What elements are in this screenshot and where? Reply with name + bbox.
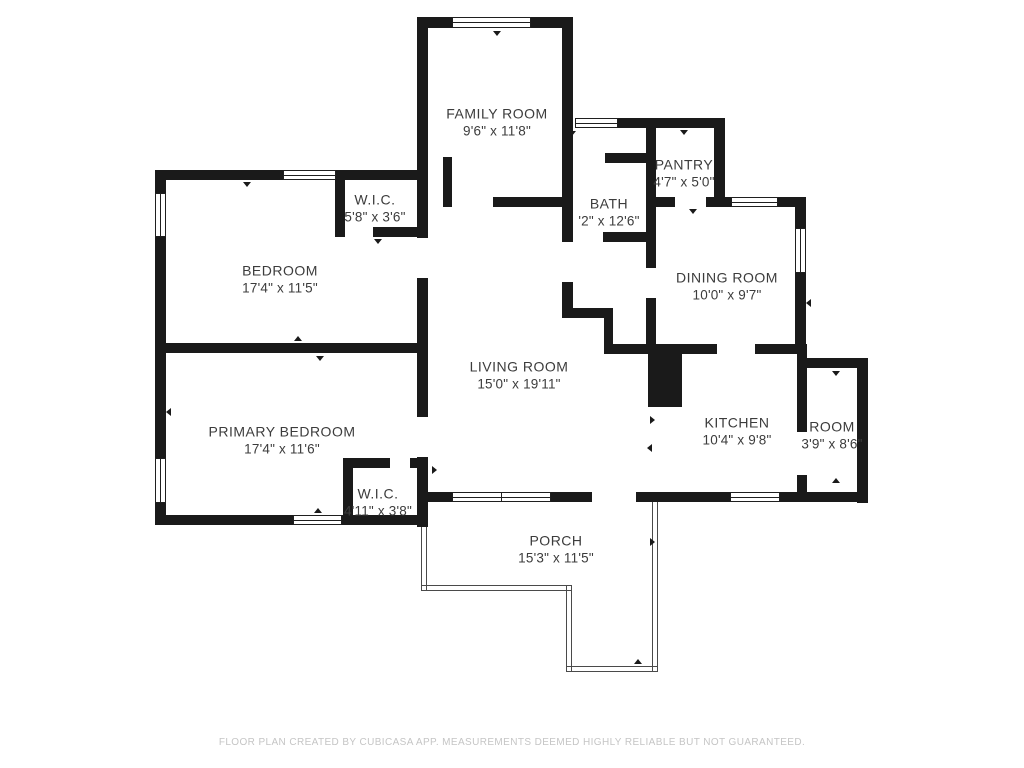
wall-segment	[795, 271, 806, 354]
wall-segment	[778, 492, 868, 502]
room-name: BATH	[578, 196, 639, 212]
wall-segment	[425, 492, 453, 502]
dimension-tick	[294, 336, 302, 341]
window-symbol	[293, 515, 342, 525]
window-symbol	[155, 458, 166, 503]
wall-segment	[562, 127, 573, 242]
dimension-tick	[689, 209, 697, 214]
window-symbol	[795, 228, 806, 273]
dimension-tick	[493, 31, 501, 36]
room-label-primary-bedroom: PRIMARY BEDROOM17'4" x 11'6"	[208, 424, 355, 457]
floor-plan-canvas: FAMILY ROOM9'6" x 11'8"PANTRY4'7" x 5'0"…	[0, 0, 1024, 768]
room-name: W.I.C.	[344, 192, 405, 208]
room-name: FAMILY ROOM	[446, 106, 547, 122]
room-label-living-room: LIVING ROOM15'0" x 19'11"	[470, 359, 569, 392]
dimension-tick	[647, 444, 652, 452]
wall-segment	[605, 153, 650, 163]
room-dimensions: 5'8" x 3'6"	[344, 210, 405, 225]
window-mullion-line	[160, 459, 161, 502]
window-symbol	[501, 492, 551, 502]
porch-outline	[566, 666, 658, 672]
window-mullion-line	[502, 497, 550, 498]
room-dimensions: 17'4" x 11'6"	[208, 442, 355, 457]
dimension-tick	[432, 466, 437, 474]
wall-segment	[706, 197, 725, 207]
wall-segment	[334, 170, 428, 180]
window-mullion-line	[576, 123, 617, 124]
window-mullion-line	[160, 194, 161, 236]
wall-segment	[549, 492, 592, 502]
room-label-porch: PORCH15'3" x 11'5"	[518, 533, 594, 566]
wall-segment	[373, 227, 428, 237]
room-name: PRIMARY BEDROOM	[208, 424, 355, 440]
room-name: KITCHEN	[703, 415, 772, 431]
wall-segment	[803, 358, 865, 368]
dimension-tick	[634, 659, 642, 664]
room-label-bedroom: BEDROOM17'4" x 11'5"	[242, 263, 318, 296]
window-mullion-line	[453, 497, 501, 498]
window-mullion-line	[800, 229, 801, 272]
wall-segment	[646, 197, 675, 207]
wall-segment	[714, 118, 725, 207]
room-dimensions: '2" x 12'6"	[578, 214, 639, 229]
room-label-w-i-c: W.I.C.5'8" x 3'6"	[344, 192, 405, 225]
room-dimensions: 10'0" x 9'7"	[676, 288, 778, 303]
room-dimensions: 3'9" x 8'6"	[801, 437, 862, 452]
room-name: PORCH	[518, 533, 594, 549]
porch-outline	[652, 502, 658, 672]
wall-segment	[335, 227, 343, 237]
room-dimensions: 9'6" x 11'8"	[446, 124, 547, 139]
porch-outline	[421, 525, 427, 590]
wall-segment	[562, 17, 573, 127]
room-dimensions: 15'0" x 19'11"	[470, 377, 569, 392]
dimension-tick	[680, 130, 688, 135]
wall-segment	[603, 232, 650, 242]
dimension-tick	[568, 131, 576, 136]
room-dimensions: 10'4" x 9'8"	[703, 433, 772, 448]
window-symbol	[731, 197, 778, 207]
wall-segment	[646, 118, 656, 268]
room-label-bath: BATH'2" x 12'6"	[578, 196, 639, 229]
room-label-kitchen: KITCHEN10'4" x 9'8"	[703, 415, 772, 448]
room-label-room: ROOM3'9" x 8'6"	[801, 419, 862, 452]
dimension-tick	[806, 299, 811, 307]
room-dimensions: 4'7" x 5'0"	[653, 175, 714, 190]
wall-segment	[158, 515, 295, 525]
window-symbol	[730, 492, 780, 502]
wall-segment	[417, 17, 428, 238]
room-label-dining-room: DINING ROOM10'0" x 9'7"	[676, 270, 778, 303]
room-label-pantry: PANTRY4'7" x 5'0"	[653, 157, 714, 190]
room-name: LIVING ROOM	[470, 359, 569, 375]
wall-segment	[443, 157, 452, 207]
dimension-tick	[832, 371, 840, 376]
wall-segment	[155, 501, 166, 525]
wall-segment	[155, 170, 285, 180]
porch-outline	[566, 585, 572, 672]
wall-segment	[493, 197, 567, 207]
dimension-tick	[832, 478, 840, 483]
window-symbol	[155, 193, 166, 237]
porch-outline	[421, 585, 571, 591]
window-mullion-line	[731, 497, 779, 498]
room-name: DINING ROOM	[676, 270, 778, 286]
room-name: ROOM	[801, 419, 862, 435]
room-dimensions: 15'3" x 11'5"	[518, 551, 594, 566]
dimension-tick	[314, 508, 322, 513]
window-symbol	[452, 17, 531, 28]
room-label-w-i-c: W.I.C.4'11" x 3'8"	[344, 486, 412, 519]
room-dimensions: 4'11" x 3'8"	[344, 504, 412, 519]
wall-segment	[616, 118, 725, 128]
room-label-family-room: FAMILY ROOM9'6" x 11'8"	[446, 106, 547, 139]
window-symbol	[283, 170, 336, 180]
wall-segment	[646, 298, 656, 345]
window-mullion-line	[284, 175, 335, 176]
window-mullion-line	[294, 520, 341, 521]
room-name: PANTRY	[653, 157, 714, 173]
room-name: W.I.C.	[344, 486, 412, 502]
window-symbol	[575, 118, 618, 128]
wall-segment	[158, 343, 428, 353]
wall-segment	[648, 345, 682, 407]
window-mullion-line	[453, 22, 530, 23]
floor-plan-disclaimer: FLOOR PLAN CREATED BY CUBICASA APP. MEAS…	[0, 737, 1024, 748]
wall-segment	[795, 197, 806, 230]
wall-segment	[410, 458, 428, 468]
dimension-tick	[374, 239, 382, 244]
window-mullion-line	[732, 202, 777, 203]
dimension-tick	[650, 416, 655, 424]
dimension-tick	[650, 538, 655, 546]
dimension-tick	[243, 182, 251, 187]
window-symbol	[452, 492, 502, 502]
room-dimensions: 17'4" x 11'5"	[242, 281, 318, 296]
dimension-tick	[166, 408, 171, 416]
wall-segment	[636, 492, 732, 502]
dimension-tick	[316, 356, 324, 361]
room-name: BEDROOM	[242, 263, 318, 279]
